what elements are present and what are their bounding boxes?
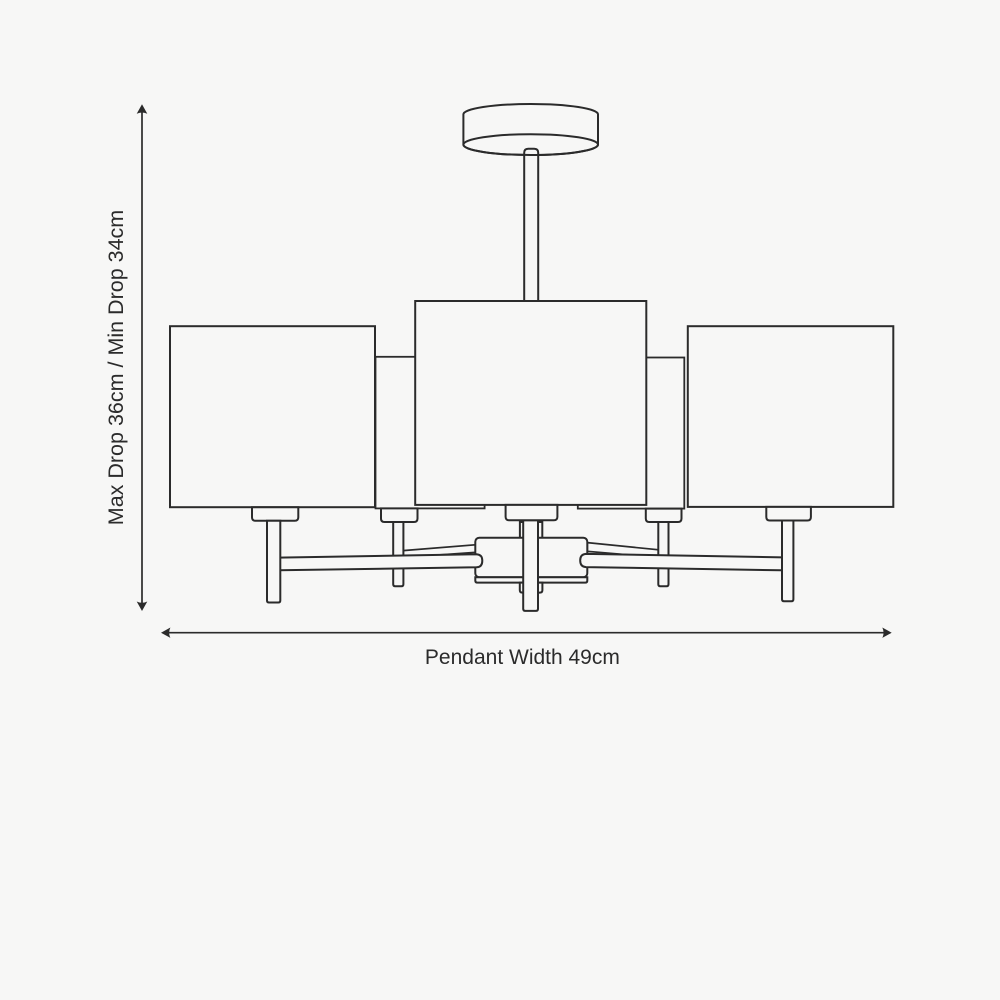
svg-text:Pendant Width 49cm: Pendant Width 49cm: [425, 646, 620, 669]
svg-text:Max Drop 36cm / Min Drop 34cm: Max Drop 36cm / Min Drop 34cm: [104, 210, 128, 525]
